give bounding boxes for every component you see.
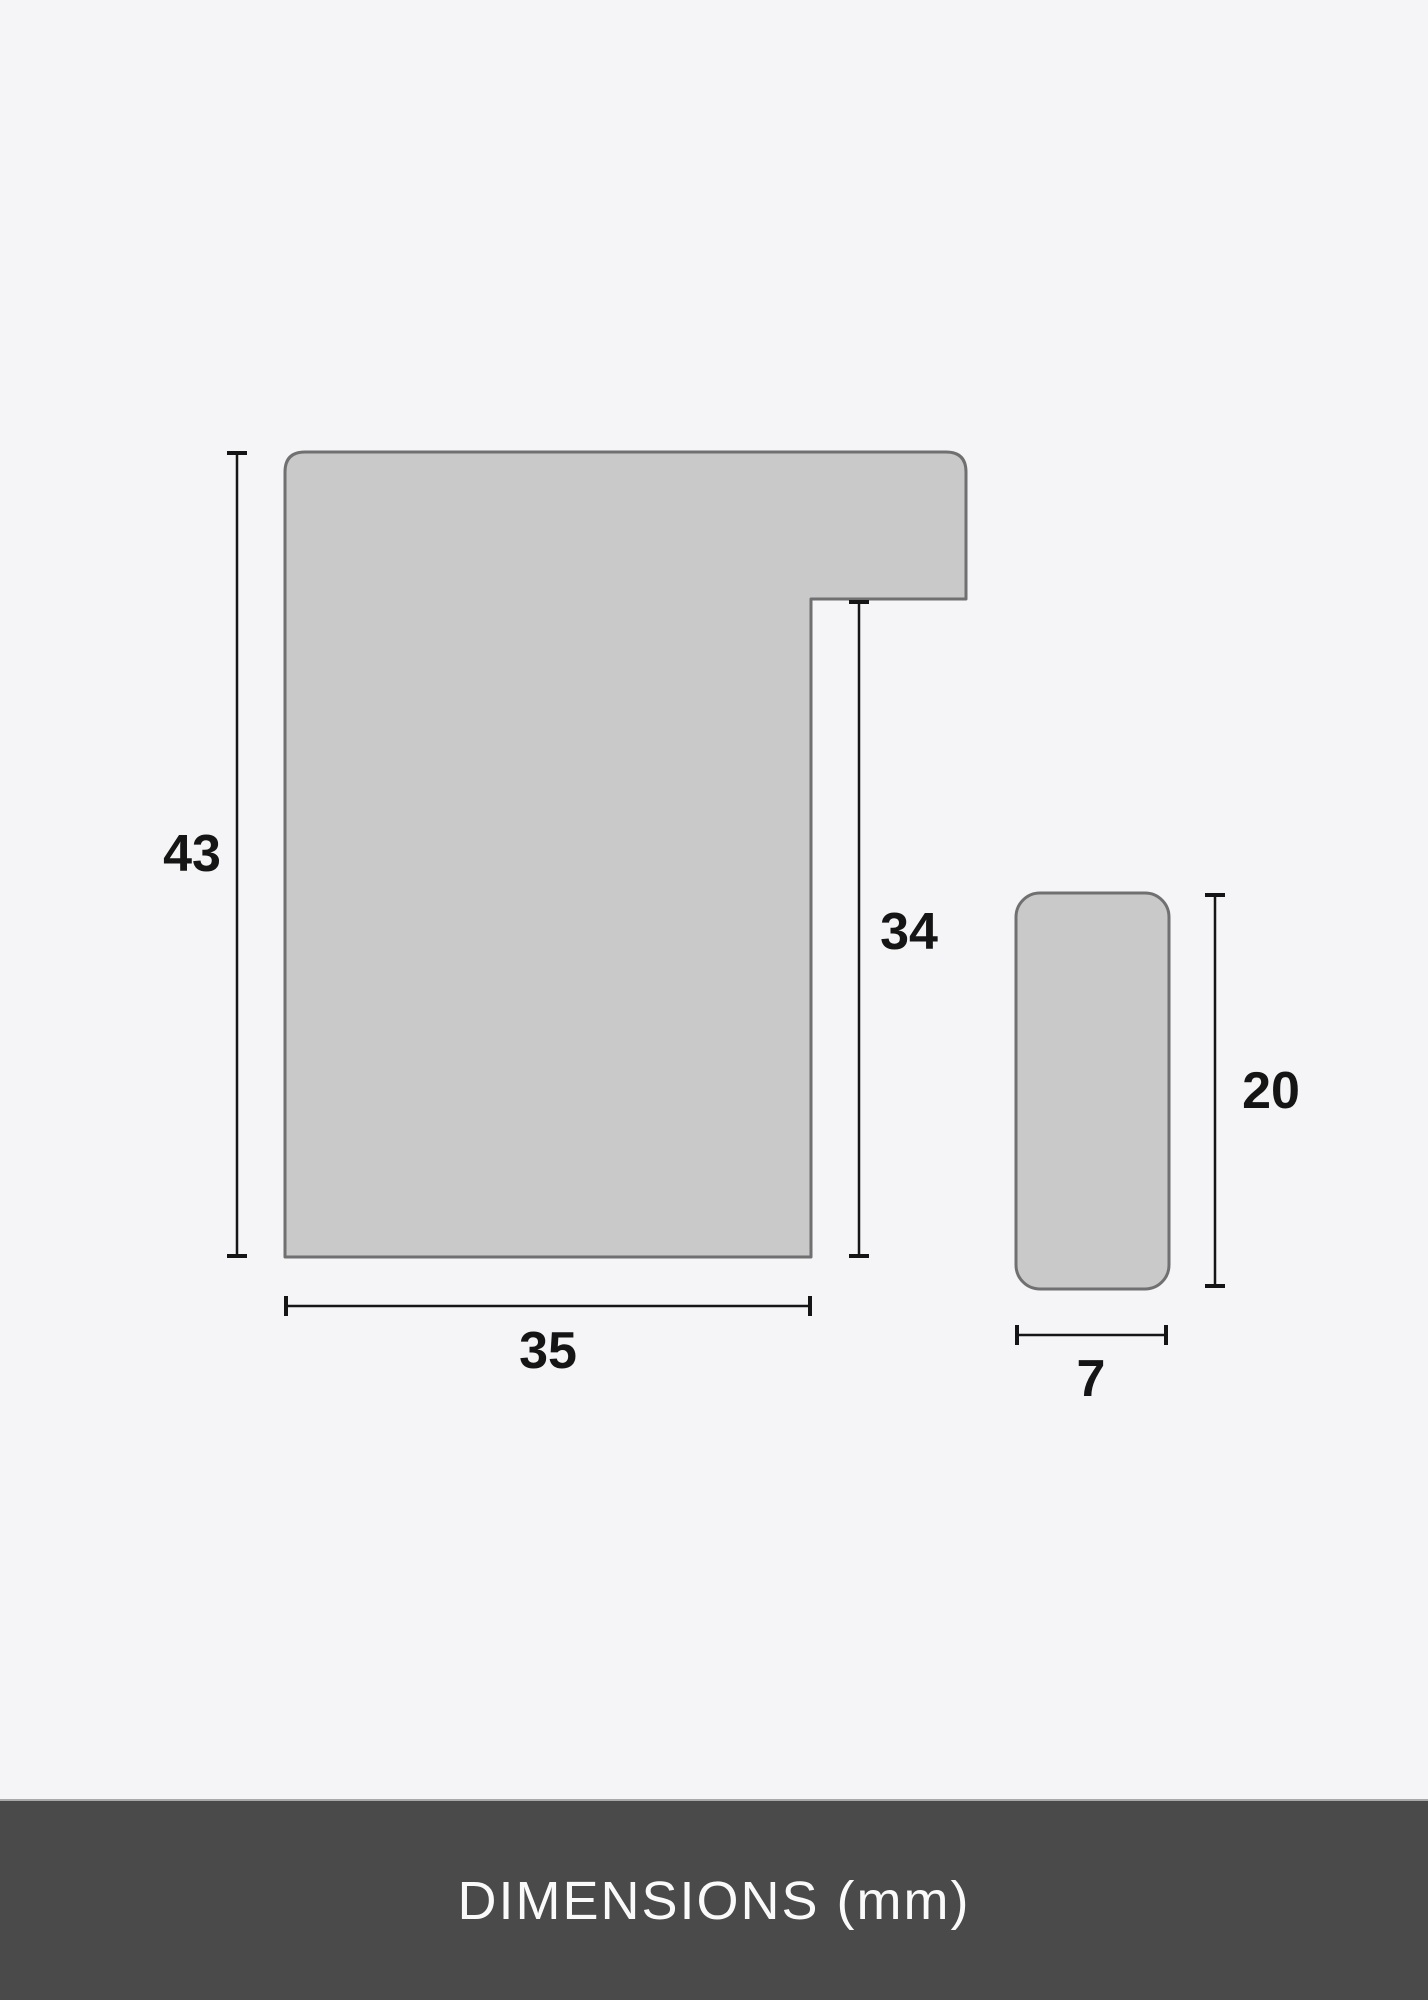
dimension-43-group: 43 xyxy=(163,453,247,1256)
footer-bar: DIMENSIONS (mm) xyxy=(0,1799,1428,2000)
dimension-35-group: 35 xyxy=(286,1296,810,1380)
diagram-canvas: 43 34 35 20 7 xyxy=(0,0,1428,1799)
dimension-34-group: 34 xyxy=(849,602,938,1256)
dimensions-diagram-page: 43 34 35 20 7 xyxy=(0,0,1428,2000)
dimension-34-label: 34 xyxy=(880,903,938,961)
dimension-43-label: 43 xyxy=(163,825,221,883)
dimension-7-group: 7 xyxy=(1017,1325,1166,1408)
left-profile-shape xyxy=(285,452,966,1257)
dimension-35-label: 35 xyxy=(519,1322,577,1380)
right-profile-shape xyxy=(1016,893,1169,1289)
dimension-20-label: 20 xyxy=(1242,1062,1300,1120)
dimension-7-label: 7 xyxy=(1077,1350,1106,1408)
footer-title: DIMENSIONS (mm) xyxy=(458,1874,971,1928)
dimension-20-group: 20 xyxy=(1205,895,1300,1286)
